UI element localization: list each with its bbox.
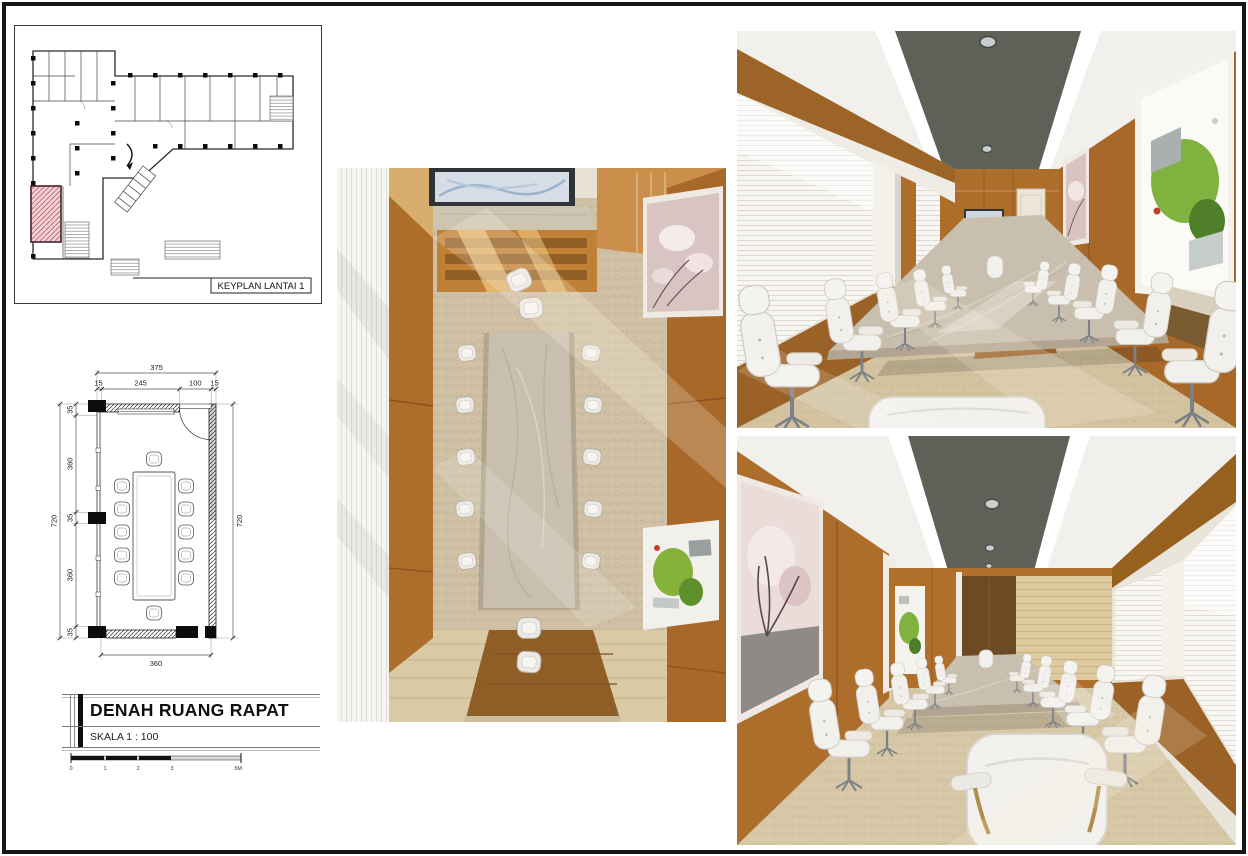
- wood-floor-strip: [382, 630, 682, 722]
- artwork-pink-blossom: [643, 186, 723, 318]
- dim-width-total: 375: [150, 363, 163, 372]
- dim-height-total-right: 720: [235, 515, 244, 528]
- scale-label: 3: [170, 766, 173, 772]
- dim-seg: 15: [94, 379, 102, 388]
- window-blinds-left: [337, 168, 389, 722]
- divider-line: [74, 694, 75, 747]
- divider-line: [62, 747, 320, 748]
- dim-seg: 245: [134, 379, 147, 388]
- keyplan-highlight-room: [31, 186, 61, 242]
- dim-seg: 360: [66, 458, 75, 471]
- floorplan-panel: 375 15 245 100 15 720 35 360 35 360 35 7…: [42, 360, 322, 695]
- wood-wall-left: [389, 168, 433, 673]
- scale-bar: 0 1 2 3 5M: [66, 752, 276, 774]
- divider-line: [62, 726, 320, 727]
- head-chair: [979, 650, 993, 668]
- keyplan-stairs: [65, 96, 293, 275]
- door-swing: [180, 404, 212, 440]
- window-blinds: [1115, 572, 1162, 682]
- divider-line: [62, 697, 320, 698]
- window-pillar: [1162, 560, 1184, 676]
- dim-seg: 35: [66, 514, 75, 522]
- conference-table-plan: [133, 472, 175, 600]
- divider-line: [70, 694, 71, 747]
- dim-bottom-width: 360: [150, 659, 163, 668]
- render-perspective-b: [737, 436, 1236, 845]
- wall-bottom: [106, 630, 176, 638]
- dim-seg: 35: [66, 406, 75, 414]
- scale-label: 2: [136, 766, 139, 772]
- dim-seg: 360: [66, 569, 75, 582]
- dim-height-total-left: 720: [50, 515, 59, 528]
- artwork-green: [643, 520, 719, 630]
- wood-wall-panel: [901, 176, 916, 283]
- title-block: DENAH RUANG RAPAT SKALA 1 : 100 0 1 2 3 …: [62, 694, 320, 774]
- render-perspective-a: [737, 31, 1236, 428]
- divider-line: [62, 750, 320, 751]
- head-chair: [987, 256, 1003, 278]
- dim-seg: 35: [66, 628, 75, 636]
- drawing-title: DENAH RUANG RAPAT: [90, 700, 289, 721]
- artwork-pink-blossom: [1063, 148, 1089, 247]
- keyplan-drawing: KEYPLAN LANTAI 1: [15, 26, 319, 301]
- dim-seg: 15: [210, 379, 218, 388]
- render-top-view: [337, 168, 726, 722]
- divider-line: [78, 694, 83, 747]
- keyplan-entry-arrow: [127, 144, 132, 166]
- scale-label: 5M: [234, 766, 242, 772]
- keyplan-entry-arrowhead: [127, 162, 133, 170]
- keyplan-entrance-canopy: [115, 166, 156, 212]
- floorplan-drawing: 375 15 245 100 15 720 35 360 35 360 35 7…: [42, 360, 322, 695]
- artwork-green: [1135, 47, 1234, 303]
- keyplan-panel: KEYPLAN LANTAI 1: [14, 25, 322, 304]
- wall-tv: [429, 168, 575, 206]
- scale-label: 0: [69, 766, 72, 772]
- divider-line: [62, 694, 320, 695]
- scale-label: 1: [103, 766, 106, 772]
- presentation-sheet: KEYPLAN LANTAI 1: [0, 0, 1248, 856]
- dim-seg: 100: [189, 379, 202, 388]
- drawing-scale: SKALA 1 : 100: [90, 731, 158, 743]
- keyplan-label: KEYPLAN LANTAI 1: [218, 281, 305, 292]
